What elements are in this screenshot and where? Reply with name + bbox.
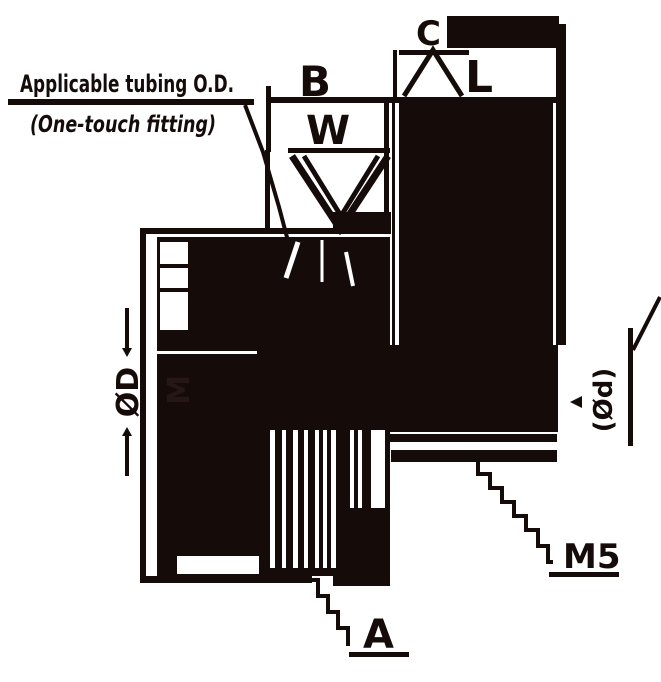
- note-line1: Applicable tubing O.D.: [20, 70, 234, 98]
- dim-od-label: ØD: [111, 367, 146, 417]
- right-edge-column: [556, 24, 566, 345]
- dim-c-label: C: [416, 14, 441, 54]
- stem-slit-9: [358, 430, 362, 508]
- stem-bottom-cap: [333, 570, 390, 586]
- upper-right-body-mass: [399, 102, 553, 345]
- right-dim-arrow: [570, 396, 582, 408]
- collet-left-edge: [265, 150, 270, 232]
- thread-label-underline: [549, 572, 619, 577]
- drawing-canvas: Applicable tubing O.D. (One-touch fittin…: [0, 0, 661, 682]
- note-underline: [8, 99, 254, 105]
- stem-slit-10: [371, 430, 385, 508]
- dim-m-label: M: [162, 375, 197, 405]
- thread-stripe-1: [389, 434, 557, 442]
- thread-stripe-2: [391, 450, 557, 462]
- w-dimension-line: [288, 148, 390, 153]
- left-view-bottom-edge: [140, 576, 312, 583]
- dim-a-label: A: [363, 612, 394, 658]
- left-view-step: [333, 212, 391, 229]
- stem-slit-3: [293, 430, 298, 568]
- dim-l-label: L: [465, 52, 493, 103]
- stem-slit-8: [350, 430, 354, 508]
- fitting-dimension-drawing: Applicable tubing O.D. (One-touch fittin…: [0, 0, 661, 682]
- inner-panel-line-2: [160, 288, 188, 292]
- body-seam-cutout: [157, 351, 257, 354]
- right-extension-line: [628, 328, 633, 446]
- dim-b-label: B: [299, 57, 331, 106]
- a-leader-line: [308, 580, 348, 646]
- horizontal-body-mass: [389, 345, 558, 432]
- c-leader-peak: [404, 50, 462, 96]
- left-dim-arrow-top: [122, 348, 132, 357]
- stem-slit-7: [331, 430, 336, 568]
- thread-leader-line: [478, 462, 553, 562]
- b-extension-line: [266, 86, 271, 152]
- a-callout: A: [308, 580, 409, 658]
- stem-slit-5: [315, 430, 319, 568]
- stem-slit-6: [323, 430, 327, 568]
- left-dim-line-top: [125, 308, 129, 348]
- note-line2: (One-touch fitting): [30, 112, 216, 138]
- dim-w-label: W: [306, 108, 350, 154]
- right-corner-diagonal: [633, 297, 660, 350]
- top-right-band: [447, 16, 559, 48]
- c-extension-tick: [393, 50, 397, 103]
- dim-od2-label: (Ød): [589, 368, 619, 432]
- thread-size-label: M5: [563, 537, 621, 577]
- bottom-notch-cutout: [177, 556, 259, 574]
- stem-slit-1: [270, 430, 275, 568]
- left-dim-arrow-bottom: [122, 427, 132, 436]
- left-dim-line-bottom: [125, 436, 129, 476]
- inner-panel-cutout: [160, 242, 188, 330]
- stem-slit-4: [304, 430, 308, 568]
- right-dimension: (Ød): [570, 297, 660, 446]
- thread-callout: M5: [478, 462, 621, 577]
- a-label-underline: [349, 652, 409, 657]
- inner-extension-line: [392, 102, 395, 345]
- stem-slit-2: [282, 430, 286, 568]
- inner-panel-line-1: [160, 264, 188, 268]
